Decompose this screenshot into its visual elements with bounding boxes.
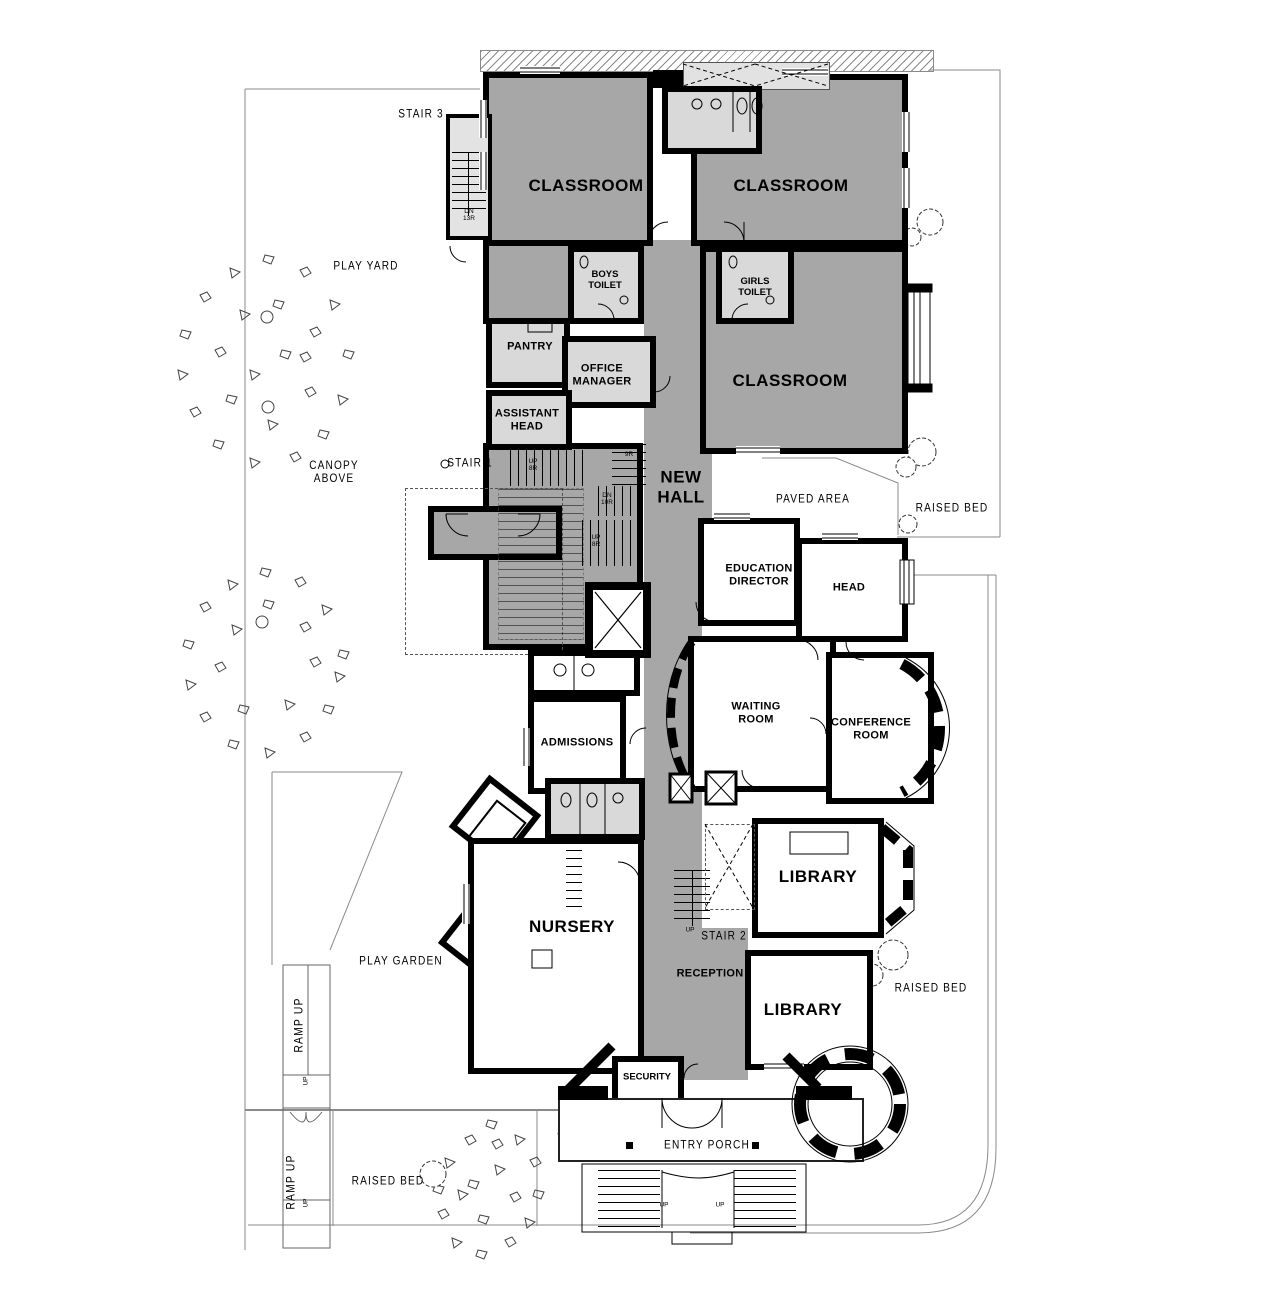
nursery-label: NURSERY <box>529 917 615 937</box>
classroom-mr-label: CLASSROOM <box>733 371 848 391</box>
door-swings <box>446 222 864 1128</box>
classroom-mr-east-bay <box>906 284 932 392</box>
floor-plan: STAIR 3 PLAY YARD CANOPY ABOVE STAIR 1 P… <box>0 0 1280 1292</box>
library-lower-turret <box>800 1054 900 1154</box>
classroom-tr-label: CLASSROOM <box>734 176 849 196</box>
canopy-above-label: CANOPY ABOVE <box>309 460 359 486</box>
entry-porch-label: ENTRY PORCH <box>664 1139 750 1152</box>
library-lower-label: LIBRARY <box>764 1000 842 1020</box>
ramp-up-bottom-label: RAMP UP <box>285 1154 298 1209</box>
up-8r-upper-annotation: UP 8R <box>528 459 537 473</box>
reception-label: RECEPTION <box>677 968 744 981</box>
library-upper-canted-bay <box>882 828 908 928</box>
security-label: SECURITY <box>623 1073 671 1084</box>
turret-outer-ring <box>792 1046 908 1162</box>
entry-steps-outline <box>582 1164 806 1244</box>
office-manager-label: OFFICE MANAGER <box>573 362 632 387</box>
raised-bed-mid-label: RAISED BED <box>895 982 968 995</box>
dn-13r-annotation: DN 13R <box>463 209 475 223</box>
girls-toilet-label: GIRLS TOILET <box>738 277 772 299</box>
raised-bed-right-label: RAISED BED <box>916 502 989 515</box>
new-hall-label: NEW HALL <box>657 467 704 506</box>
classroom-tl-label: CLASSROOM <box>529 176 644 196</box>
up-ramp-bottom-annotation: UP <box>304 1198 311 1207</box>
play-yard-label: PLAY YARD <box>333 260 398 273</box>
up-9r-annotation: UP 9R <box>624 445 633 459</box>
up-stair2-annotation: UP <box>685 928 694 935</box>
waiting-west-curved-wall <box>671 642 692 788</box>
boys-toilet-label: BOYS TOILET <box>588 270 622 292</box>
raised-bed-bottom-label: RAISED BED <box>352 1175 425 1188</box>
up-entry-left-annotation: UP <box>659 1203 668 1210</box>
canted-wall-southwest <box>566 1046 612 1092</box>
stair-1-label: STAIR 1 <box>447 457 492 470</box>
stair-2-label: STAIR 2 <box>701 930 746 943</box>
head-label: HEAD <box>833 582 865 595</box>
library-upper-label: LIBRARY <box>779 867 857 887</box>
pantry-label: PANTRY <box>507 341 553 354</box>
ramp-up-top-label: RAMP UP <box>293 997 306 1052</box>
head-east-bay <box>900 560 914 604</box>
turret-inner-ring <box>808 1062 892 1146</box>
conference-room-label: CONFERENCE ROOM <box>831 716 911 741</box>
play-garden-label: PLAY GARDEN <box>359 955 443 968</box>
waiting-room-label: WAITING ROOM <box>731 700 780 725</box>
up-entry-right-annotation: UP <box>715 1203 724 1210</box>
education-director-label: EDUCATION DIRECTOR <box>725 562 792 587</box>
dn-10r-annotation: DN 10R <box>601 493 613 507</box>
paved-area-label: PAVED AREA <box>776 493 850 506</box>
admissions-label: ADMISSIONS <box>541 737 614 750</box>
up-8r-lower-annotation: UP 8R <box>591 535 600 549</box>
assistant-head-label: ASSISTANT HEAD <box>495 407 559 432</box>
stair-3-label: STAIR 3 <box>398 108 443 121</box>
up-ramp-top-annotation: UP <box>304 1076 311 1085</box>
fixtures <box>441 92 848 968</box>
